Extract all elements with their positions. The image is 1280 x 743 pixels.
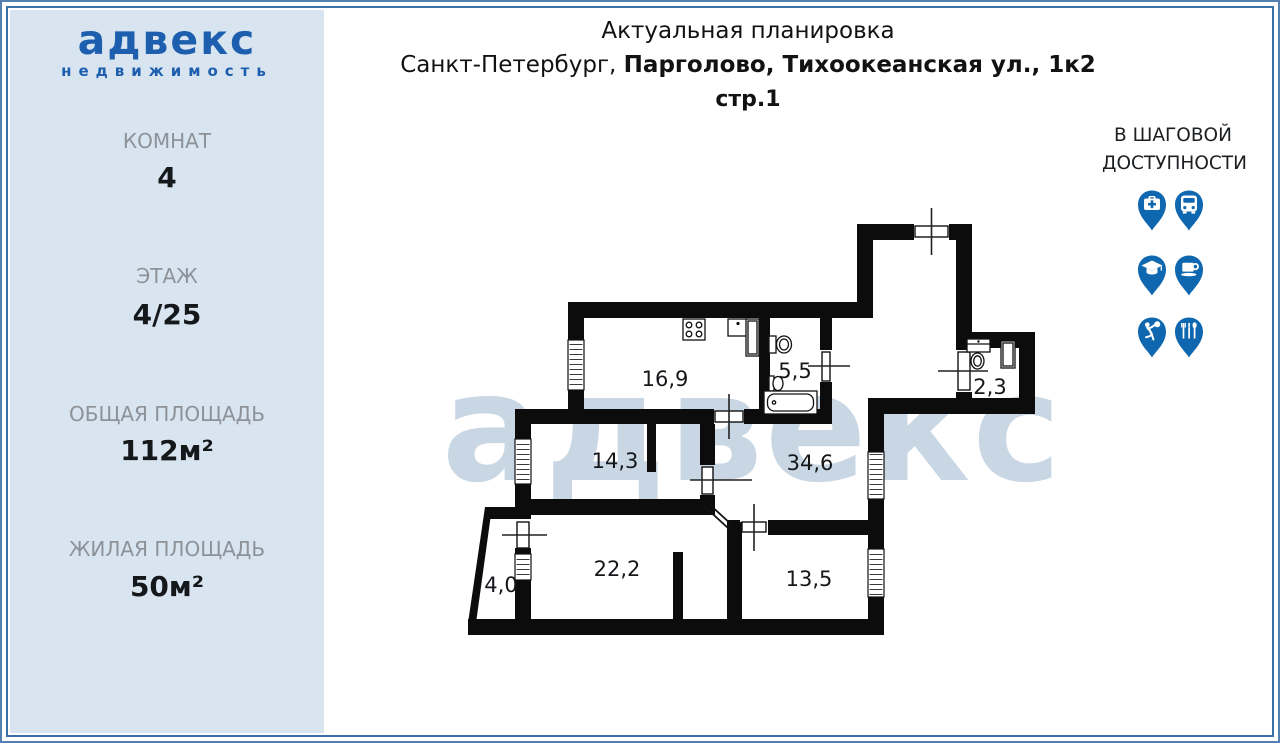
agency-logo: адвекс недвижимость (10, 20, 324, 80)
room-window (868, 549, 884, 597)
cafe-pin-icon (1172, 253, 1206, 297)
rooms-value: 4 (10, 161, 324, 195)
floor-value: 4/25 (10, 298, 324, 332)
school-pin-icon (1135, 253, 1169, 297)
wc-sink-icon (967, 339, 990, 352)
sports-pin-icon (1135, 315, 1169, 359)
room-label-hall: 34,6 (787, 451, 834, 475)
restaurant-pin-icon (1172, 315, 1206, 359)
logo-brand: адвекс (10, 20, 324, 60)
listing-flyer: адвекс недвижимость КОМНАТ 4 ЭТАЖ 4/25 О… (0, 0, 1280, 743)
balcony-outer-wall (468, 507, 492, 623)
address-street: Парголово, Тихоокеанская ул., 1к2 (624, 52, 1096, 78)
bathtub-icon (764, 391, 817, 414)
room-label-room: 13,5 (786, 567, 833, 591)
nearby-block: В ШАГОВОЙ ДОСТУПНОСТИ (1102, 122, 1244, 178)
floor-label: ЭТАЖ (10, 263, 324, 289)
sidebar: адвекс недвижимость КОМНАТ 4 ЭТАЖ 4/25 О… (10, 10, 324, 733)
room-label-bathroom: 5,5 (778, 359, 811, 383)
logo-subtitle: недвижимость (10, 62, 324, 80)
pharmacy-pin-icon (1135, 188, 1169, 232)
total-area-value: 112м² (10, 434, 324, 468)
room-label-balcony: 4,0 (484, 573, 517, 597)
boiler-icon (1001, 341, 1015, 368)
address-line: Санкт-Петербург, Парголово, Тихоокеанска… (332, 50, 1164, 80)
header: Актуальная планировка Санкт-Петербург, П… (332, 2, 1164, 114)
nearby-heading-line1: В ШАГОВОЙ (1102, 122, 1244, 150)
rooms-label: КОМНАТ (10, 128, 324, 154)
stove-icon (683, 319, 705, 340)
kitchen-window (568, 340, 584, 390)
kitchen-sink-icon (728, 319, 748, 336)
floorplan-svg: 16,9 5,5 2,3 14,3 34,6 22,2 13,5 4,0 (442, 192, 1052, 652)
living-area-value: 50м² (10, 570, 324, 604)
total-area-label: ОБЩАЯ ПЛОЩАДЬ (10, 401, 324, 427)
hall-window (868, 452, 884, 499)
room-labels: 16,9 5,5 2,3 14,3 34,6 22,2 13,5 4,0 (484, 359, 1006, 597)
room-label-hallway: 14,3 (592, 449, 639, 473)
toilet-icon (769, 336, 792, 353)
fridge-icon (746, 319, 759, 356)
address-city: Санкт-Петербург, (400, 52, 623, 78)
building-line: стр.1 (332, 85, 1164, 114)
bus-stop-pin-icon (1172, 188, 1206, 232)
room-label-living-room: 22,2 (594, 557, 641, 581)
page-title: Актуальная планировка (332, 16, 1164, 46)
room-label-wc: 2,3 (973, 375, 1006, 399)
nearby-heading-line2: ДОСТУПНОСТИ (1102, 150, 1244, 178)
nearby-heading: В ШАГОВОЙ ДОСТУПНОСТИ (1102, 122, 1244, 178)
walls (468, 224, 1035, 635)
living-area-label: ЖИЛАЯ ПЛОЩАДЬ (10, 536, 324, 562)
room-label-kitchen: 16,9 (642, 367, 689, 391)
wc-toilet-icon (971, 353, 984, 369)
hallway-window (515, 439, 531, 484)
